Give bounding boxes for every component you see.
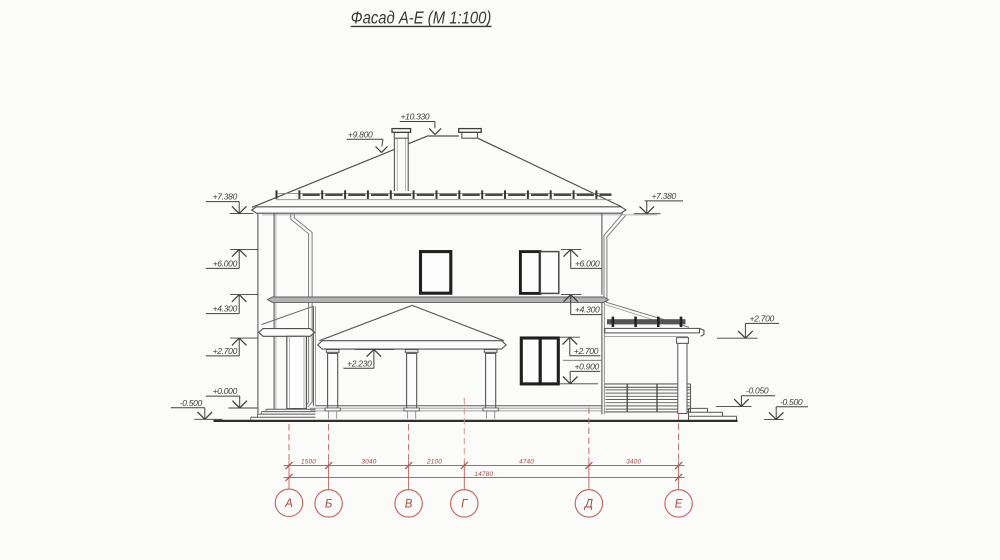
svg-text:+7.380: +7.380	[213, 192, 238, 202]
svg-text:14780: 14780	[474, 471, 493, 478]
svg-text:3040: 3040	[361, 458, 376, 465]
svg-text:-0.050: -0.050	[746, 386, 769, 396]
svg-text:Б: Б	[325, 499, 333, 511]
svg-text:Е: Е	[675, 499, 683, 511]
svg-text:+0.000: +0.000	[213, 386, 238, 396]
svg-text:+2.230: +2.230	[347, 358, 372, 368]
svg-text:4740: 4740	[519, 458, 534, 465]
svg-text:Г: Г	[461, 499, 468, 511]
svg-text:+2.700: +2.700	[574, 346, 599, 356]
svg-text:+2.700: +2.700	[213, 346, 238, 356]
svg-text:+2.700: +2.700	[750, 314, 775, 324]
svg-text:+4.300: +4.300	[575, 305, 600, 315]
svg-text:+6.000: +6.000	[213, 259, 238, 269]
svg-text:-0.500: -0.500	[180, 398, 203, 408]
svg-text:+0.900: +0.900	[575, 362, 600, 372]
svg-text:-0.500: -0.500	[780, 397, 803, 407]
svg-text:Фасад А-Е (М 1:100): Фасад А-Е (М 1:100)	[351, 8, 492, 28]
svg-text:+4.300: +4.300	[213, 304, 238, 314]
svg-text:+7.380: +7.380	[652, 191, 677, 201]
svg-text:+9.800: +9.800	[348, 129, 373, 139]
svg-text:В: В	[405, 499, 413, 511]
svg-text:2100: 2100	[426, 458, 442, 465]
svg-text:+6.000: +6.000	[575, 259, 600, 269]
svg-text:3400: 3400	[626, 458, 641, 465]
svg-text:А: А	[284, 498, 293, 510]
svg-text:Д: Д	[583, 499, 593, 511]
svg-text:1500: 1500	[301, 458, 316, 465]
svg-text:+10.330: +10.330	[401, 112, 430, 122]
